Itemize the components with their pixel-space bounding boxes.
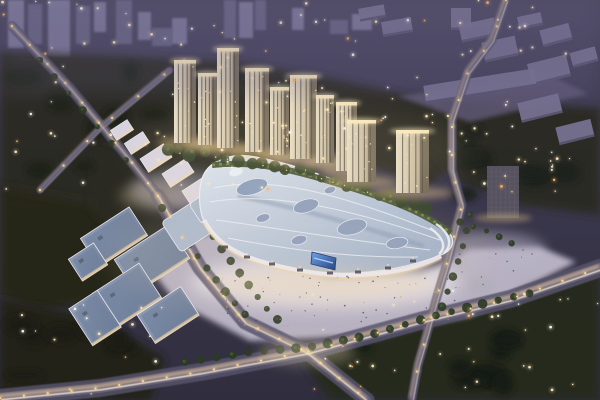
city-light — [53, 339, 55, 341]
city-light — [524, 161, 526, 163]
tower-crown-glow — [332, 100, 361, 106]
street-tree-highlight — [183, 360, 186, 363]
tree-clump — [75, 162, 94, 172]
city-light — [50, 132, 53, 135]
city-light — [551, 389, 554, 392]
city-light — [505, 104, 507, 106]
street-lamp — [131, 162, 133, 164]
street-lamp — [98, 122, 100, 124]
city-light — [30, 113, 32, 115]
street-tree-highlight — [341, 338, 344, 341]
ambient-glow — [130, 105, 470, 195]
pedestrian — [481, 276, 482, 277]
pedestrian — [454, 300, 456, 302]
pedestrian — [422, 321, 423, 322]
street-tree-highlight — [95, 125, 97, 127]
city-light — [549, 326, 552, 329]
street-lamp — [137, 95, 139, 97]
city-light — [567, 298, 568, 299]
street-tree-highlight — [440, 304, 443, 307]
pedestrian — [362, 312, 364, 314]
street-lamp — [377, 331, 379, 333]
street-lamp — [516, 295, 518, 297]
city-light — [322, 329, 324, 331]
city-light — [54, 135, 56, 137]
city-light — [82, 182, 84, 184]
pedestrian — [361, 321, 362, 322]
city-light — [550, 160, 552, 162]
city-light — [473, 171, 475, 173]
street-lamp — [238, 313, 240, 315]
street-lamp — [166, 376, 168, 378]
tree-clump — [452, 374, 489, 390]
dusk-haze — [0, 0, 600, 95]
city-light — [472, 313, 474, 315]
city-light — [21, 330, 24, 333]
pedestrian — [227, 312, 229, 314]
street-lamp — [189, 372, 191, 374]
city-light — [597, 303, 598, 304]
city-light — [552, 164, 553, 165]
city-light — [265, 101, 267, 103]
street-tree-highlight — [81, 108, 83, 110]
ambient-glow — [259, 338, 355, 366]
street-tree-highlight — [510, 241, 512, 243]
city-light — [467, 314, 470, 317]
city-light — [349, 365, 351, 367]
street-tree-highlight — [468, 213, 471, 216]
pedestrian — [287, 325, 289, 327]
street-lamp — [23, 395, 25, 397]
city-light — [14, 150, 17, 153]
pedestrian — [521, 257, 522, 258]
city-light — [554, 190, 555, 191]
city-light — [91, 393, 92, 394]
city-light — [506, 101, 507, 102]
street-lamp — [86, 140, 88, 142]
city-light — [394, 370, 396, 372]
street-lamp — [454, 181, 456, 183]
city-light — [473, 361, 475, 363]
lit-window — [175, 117, 176, 118]
pedestrian — [255, 320, 257, 322]
city-light — [154, 360, 157, 363]
pedestrian — [282, 325, 283, 326]
pedestrian — [482, 284, 483, 285]
city-light — [314, 388, 315, 389]
street-lamp — [63, 164, 65, 166]
city-light — [109, 134, 112, 137]
pedestrian — [531, 253, 532, 254]
city-light — [432, 114, 434, 116]
tree-clump — [143, 109, 168, 120]
city-light — [518, 158, 520, 160]
city-light — [528, 366, 531, 369]
tree-clump — [45, 325, 78, 343]
street-lamp — [430, 316, 432, 318]
street-tree-highlight — [357, 335, 360, 338]
pedestrian — [239, 320, 240, 321]
pedestrian — [244, 324, 246, 326]
city-light — [523, 365, 525, 367]
city-light — [74, 308, 77, 311]
city-light — [439, 353, 441, 355]
city-light — [491, 315, 494, 318]
street-lamp — [278, 338, 280, 340]
pedestrian — [505, 252, 506, 253]
lit-window — [330, 103, 332, 105]
city-light — [511, 126, 513, 128]
pedestrian — [495, 253, 496, 254]
city-light — [51, 101, 52, 102]
city-light — [461, 132, 463, 134]
city-light — [447, 115, 449, 117]
street-lamp — [81, 102, 83, 104]
city-light — [371, 365, 374, 368]
street-lamp — [94, 387, 96, 389]
city-light — [551, 152, 552, 153]
street-lamp — [539, 288, 541, 290]
pedestrian — [426, 307, 427, 308]
street-lamp — [142, 380, 144, 382]
city-light — [92, 141, 94, 143]
pedestrian — [240, 315, 242, 317]
street-lamp — [47, 392, 49, 394]
pedestrian — [501, 284, 502, 285]
pedestrian — [312, 325, 313, 326]
office-base-glow — [474, 214, 532, 222]
street-lamp — [458, 99, 460, 101]
street-tree — [244, 348, 252, 356]
tree-clump — [448, 359, 472, 376]
lit-window — [416, 185, 418, 187]
pedestrian — [366, 317, 367, 318]
street-tree-highlight — [497, 235, 499, 237]
street-lamp — [260, 359, 262, 361]
pedestrian — [448, 319, 449, 320]
city-light — [360, 386, 361, 387]
city-light — [559, 299, 561, 301]
city-light — [140, 307, 142, 309]
city-light — [287, 95, 289, 97]
city-light — [551, 169, 553, 171]
city-light — [149, 335, 151, 337]
street-tree-highlight — [243, 312, 246, 315]
city-light — [83, 304, 84, 305]
city-light — [518, 303, 519, 304]
street-lamp — [213, 368, 215, 370]
city-light — [16, 140, 18, 142]
tree-clump — [493, 374, 514, 396]
street-lamp — [584, 272, 586, 274]
city-light — [465, 387, 466, 388]
city-light — [86, 317, 88, 319]
street-tree — [484, 228, 489, 233]
ambient-glow — [118, 182, 198, 210]
pedestrian — [314, 315, 315, 316]
city-light — [161, 307, 162, 308]
city-light — [553, 179, 555, 181]
street-tree — [478, 299, 488, 309]
lit-window — [188, 110, 189, 111]
ambient-glow — [110, 195, 490, 315]
street-tree-highlight — [124, 158, 126, 160]
city-light — [486, 133, 488, 135]
street-lamp — [416, 370, 418, 372]
city-light — [356, 361, 358, 363]
lit-window — [194, 101, 196, 103]
street-lamp — [71, 390, 73, 392]
street-lamp — [111, 117, 113, 119]
street-tree — [197, 355, 205, 363]
street-tree-highlight — [275, 317, 278, 320]
street-tree-highlight — [388, 327, 391, 330]
city-light — [125, 356, 126, 357]
pedestrian — [522, 249, 523, 250]
city-light — [21, 314, 23, 316]
city-light — [98, 332, 101, 335]
screenshot-root — [0, 0, 600, 400]
city-light — [131, 323, 134, 326]
street-lamp — [423, 343, 425, 345]
pedestrian — [425, 325, 426, 326]
street-lamp — [400, 325, 402, 327]
city-light — [497, 315, 499, 317]
city-light — [483, 182, 486, 185]
pedestrian — [513, 270, 515, 272]
city-light — [504, 175, 506, 177]
city-light — [556, 157, 559, 160]
pedestrian — [386, 313, 387, 314]
street-lamp — [561, 280, 563, 282]
lamp-glow — [336, 376, 341, 381]
street-lamp — [460, 208, 462, 210]
pedestrian — [408, 313, 409, 314]
street-lamp — [357, 392, 359, 394]
street-lamp — [423, 319, 425, 321]
street-lamp — [236, 364, 238, 366]
street-tree-highlight — [230, 352, 233, 355]
lit-window — [201, 97, 202, 98]
city-light — [35, 330, 36, 331]
city-light — [5, 188, 7, 190]
city-light — [476, 381, 478, 383]
city-light — [572, 384, 574, 386]
street-tree — [402, 321, 409, 328]
city-light — [511, 191, 513, 193]
street-lamp — [451, 126, 453, 128]
street-lamp — [354, 338, 356, 340]
street-lamp — [39, 189, 41, 191]
aerial-dusk-rendering — [0, 0, 600, 400]
street-lamp — [114, 142, 116, 144]
city-light — [525, 329, 527, 331]
city-light — [535, 148, 536, 149]
city-light — [569, 158, 570, 159]
pedestrian — [506, 261, 507, 262]
street-lamp — [493, 302, 495, 304]
city-light — [392, 98, 393, 99]
city-light — [473, 127, 475, 129]
tree-clump — [499, 335, 520, 346]
street-tree — [213, 353, 221, 361]
city-light — [468, 348, 470, 350]
city-light — [500, 185, 503, 188]
tree-clump — [6, 371, 44, 380]
street-lamp — [118, 384, 120, 386]
street-lamp — [446, 313, 448, 315]
pedestrian — [280, 319, 281, 320]
street-tree-highlight — [434, 313, 437, 316]
street-lamp — [257, 327, 259, 329]
lit-window — [235, 101, 237, 103]
street-tree-highlight — [471, 224, 473, 226]
city-light — [523, 293, 526, 296]
city-light — [425, 115, 428, 118]
street-lamp — [470, 308, 472, 310]
landscape-light — [367, 192, 368, 193]
street-lamp — [338, 377, 340, 379]
